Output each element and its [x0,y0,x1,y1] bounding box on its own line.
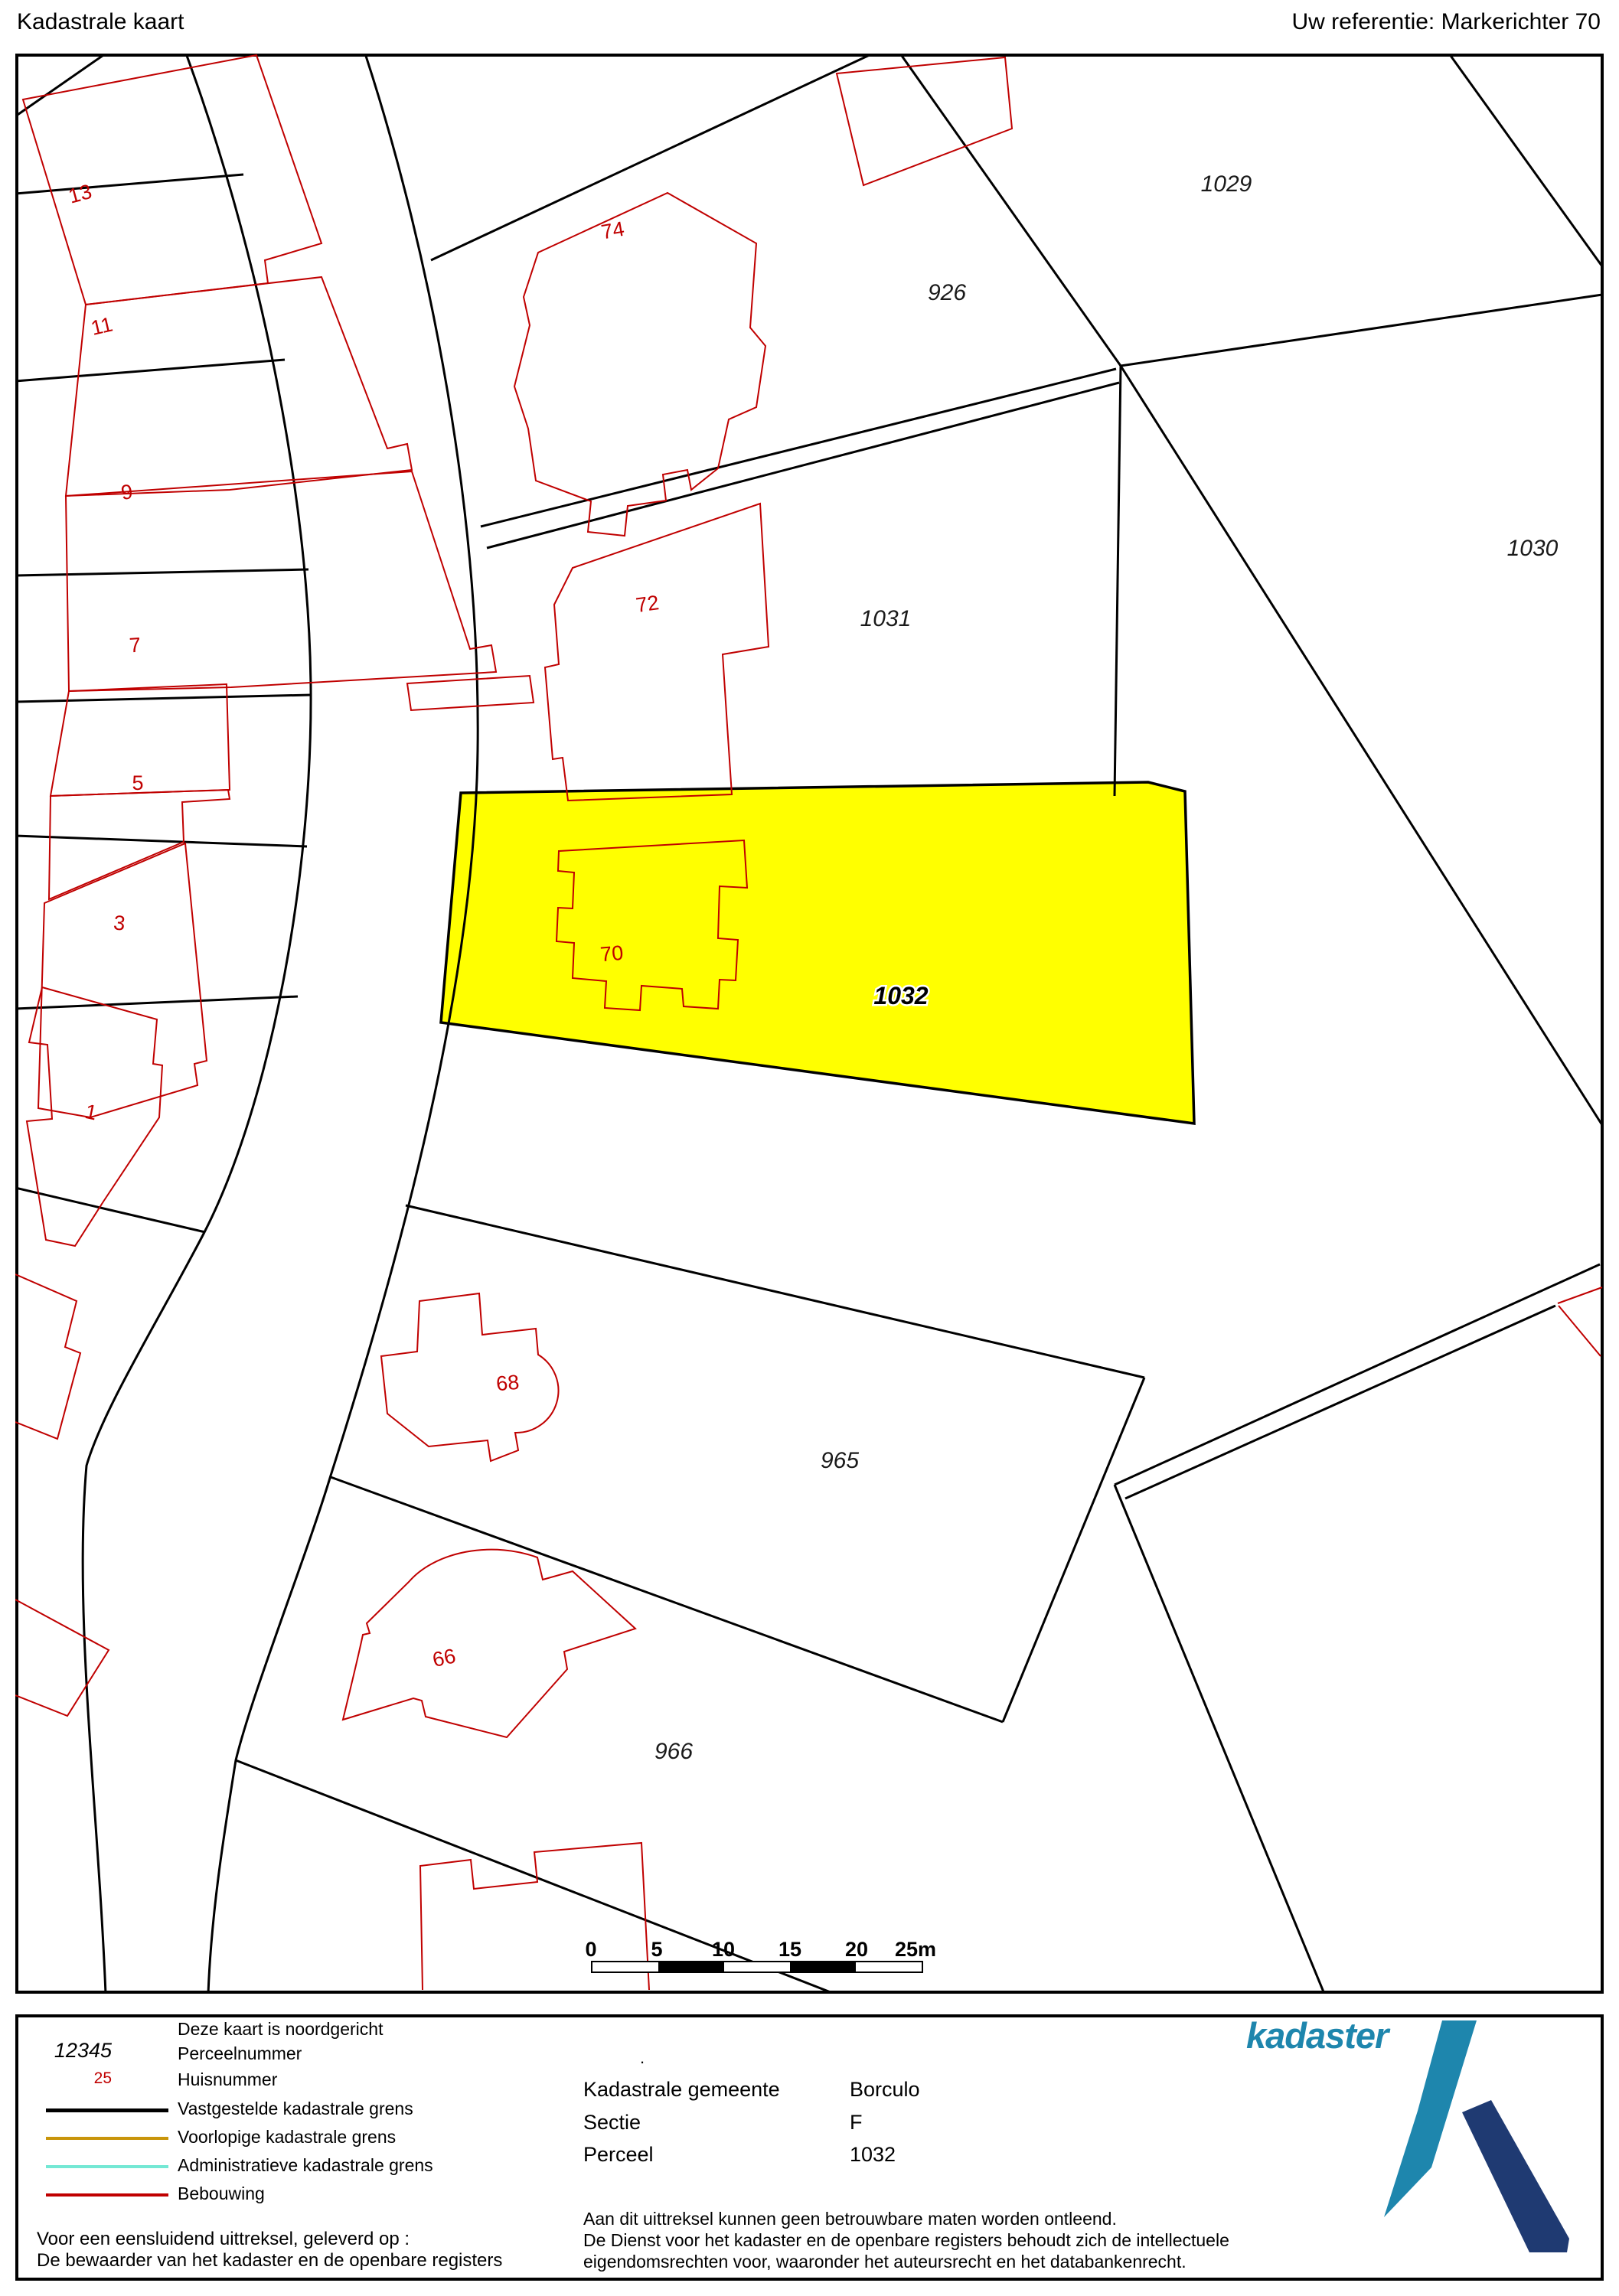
path-edge [1115,1264,1600,1485]
scale-bar-segments [591,1961,923,1973]
disclaimer-line: eigendomsrechten voor, waaronder het aut… [583,2252,1187,2272]
logo-stroke-shape [1462,2100,1569,2252]
scale-tick: 20 [845,1938,868,1962]
kadaster-logo-text: kadaster [1246,2014,1388,2056]
parcel-label-966: 966 [654,1739,693,1764]
legend-line-vastgesteld-swatch [46,2108,168,2112]
page-title: Kadastrale kaart [17,9,184,35]
scale-bar: 0 5 10 15 20 25m [591,1938,923,1978]
house-label-3: 3 [113,911,126,934]
legend-line-vastgesteld-label: Vastgestelde kadastrale grens [178,2099,413,2119]
legend-line-administratief-label: Administratieve kadastrale grens [178,2155,433,2176]
parcel-label-1031: 1031 [860,606,912,631]
boundary [406,1205,1144,1378]
footer-keeper-note: De bewaarder van het kadaster en de open… [37,2250,502,2272]
building-11 [66,277,412,496]
scale-tick: 5 [651,1938,662,1962]
building-66 [343,1550,635,1737]
legend-house-sample: 25 [52,2069,112,2088]
building-fragment [15,1274,80,1439]
disclaimer-line: De Dienst voor het kadaster en de openba… [583,2230,1229,2251]
scale-segment [790,1962,856,1971]
boundary [1115,1485,1324,1994]
house-label-11: 11 [89,312,115,340]
parcel-label-1029: 1029 [1201,171,1252,197]
road-edge-right [208,54,478,1994]
legend-line-voorlopig-swatch [46,2137,168,2140]
building-annex [407,676,534,710]
info-row-gemeente: Kadastrale gemeente Borculo [583,2078,780,2102]
scale-tick: 10 [712,1938,735,1962]
scale-tick: 15 [778,1938,801,1962]
building-5 [49,790,230,899]
legend-line-administratief-swatch [46,2165,168,2168]
scale-segment [658,1962,724,1971]
house-label-1: 1 [83,1100,99,1124]
building-fragment [837,57,1012,185]
cadastral-extract-page: Kadastrale kaart Uw referentie: Markeric… [0,0,1619,2296]
house-label-66: 66 [430,1644,458,1671]
kadaster-logo-icon [1370,2013,1585,2265]
building-9 [66,471,496,691]
building-fragment [15,1600,109,1716]
building-fragment [1558,1287,1602,1356]
info-row-sectie: Sectie F [583,2111,641,2135]
parcel-label-965: 965 [821,1448,859,1473]
scale-tick: 25m [895,1938,936,1962]
boundary [1121,295,1602,366]
info-row-perceel: Perceel 1032 [583,2143,654,2167]
cadastral-map: 926 1029 1030 1031 1032 965 966 74 72 70… [15,54,1604,1994]
info-value: F [850,2111,863,2135]
reference-text: Uw referentie: Markerichter 70 [1292,9,1601,35]
boundary [331,1477,1003,1722]
building-72 [545,504,769,801]
info-label: Kadastrale gemeente [583,2078,780,2101]
boundary [15,836,307,846]
info-label: Sectie [583,2111,641,2134]
boundary [1003,1378,1144,1722]
highlighted-parcel-1032 [441,782,1194,1124]
boundary [1121,366,1602,1125]
scale-segment [724,1962,790,1971]
boundary [15,54,106,116]
stray-dot: . [640,2048,645,2068]
info-value: 1032 [850,2143,896,2167]
scale-segment [856,1962,922,1971]
legend-parcel-sample: 12345 [52,2039,112,2063]
boundary [431,54,873,260]
boundary [15,360,285,381]
scale-tick-labels: 0 5 10 15 20 25m [591,1938,923,1958]
building-3 [38,843,207,1117]
path-edge [481,369,1116,527]
legend-line-bebouwing-swatch [46,2193,168,2197]
boundary [15,996,298,1009]
house-label-74: 74 [599,217,626,244]
legend-parcel-label: Perceelnummer [178,2043,302,2064]
parcel-label-1032: 1032 [873,982,928,1009]
building-68 [381,1293,558,1461]
legend-line-bebouwing-label: Bebouwing [178,2183,265,2204]
logo-nib-shape [1384,2020,1477,2217]
boundary [15,695,311,702]
house-label-72: 72 [635,591,661,617]
footer-delivery-note: Voor een eensluidend uittreksel, gelever… [37,2229,410,2250]
path-edge [1125,1306,1555,1499]
parcel-label-926: 926 [928,280,966,305]
house-label-7: 7 [129,634,142,657]
scale-segment [592,1962,658,1971]
legend-line-voorlopig-label: Voorlopige kadastrale grens [178,2127,396,2148]
path-edge [487,383,1119,548]
boundary [1449,54,1602,266]
disclaimer-line: Aan dit uittreksel kunnen geen betrouwba… [583,2209,1117,2229]
boundary [900,54,1121,366]
house-label-68: 68 [495,1371,521,1396]
north-note: Deze kaart is noordgericht [178,2019,383,2040]
road-edge-left [83,54,311,1994]
boundary [15,569,308,576]
house-label-13: 13 [66,180,94,208]
legend-house-label: Huisnummer [178,2069,277,2090]
boundary [1115,366,1121,796]
scale-tick: 0 [585,1938,596,1962]
info-label: Perceel [583,2143,654,2166]
house-label-70: 70 [599,941,625,967]
info-value: Borculo [850,2078,920,2102]
parcel-label-1030: 1030 [1507,536,1559,561]
house-label-9: 9 [119,480,134,504]
house-label-5: 5 [132,771,143,794]
